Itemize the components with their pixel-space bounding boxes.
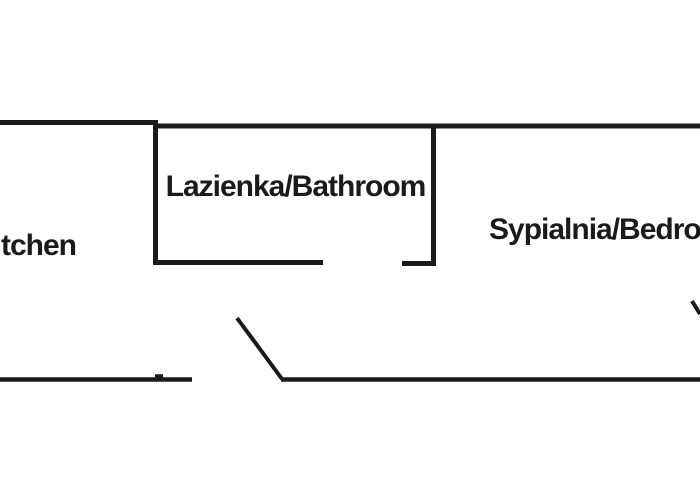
kitchen-label: tchen [1, 231, 76, 261]
bedroom-label: Sypialnia/Bedro [489, 215, 700, 245]
bathroom-label: Lazienka/Bathroom [155, 172, 436, 202]
floorplan-canvas [0, 0, 700, 500]
floorplan: Lazienka/Bathroom Sypialnia/Bedro tchen [0, 0, 700, 500]
floorplan-background [0, 0, 700, 500]
